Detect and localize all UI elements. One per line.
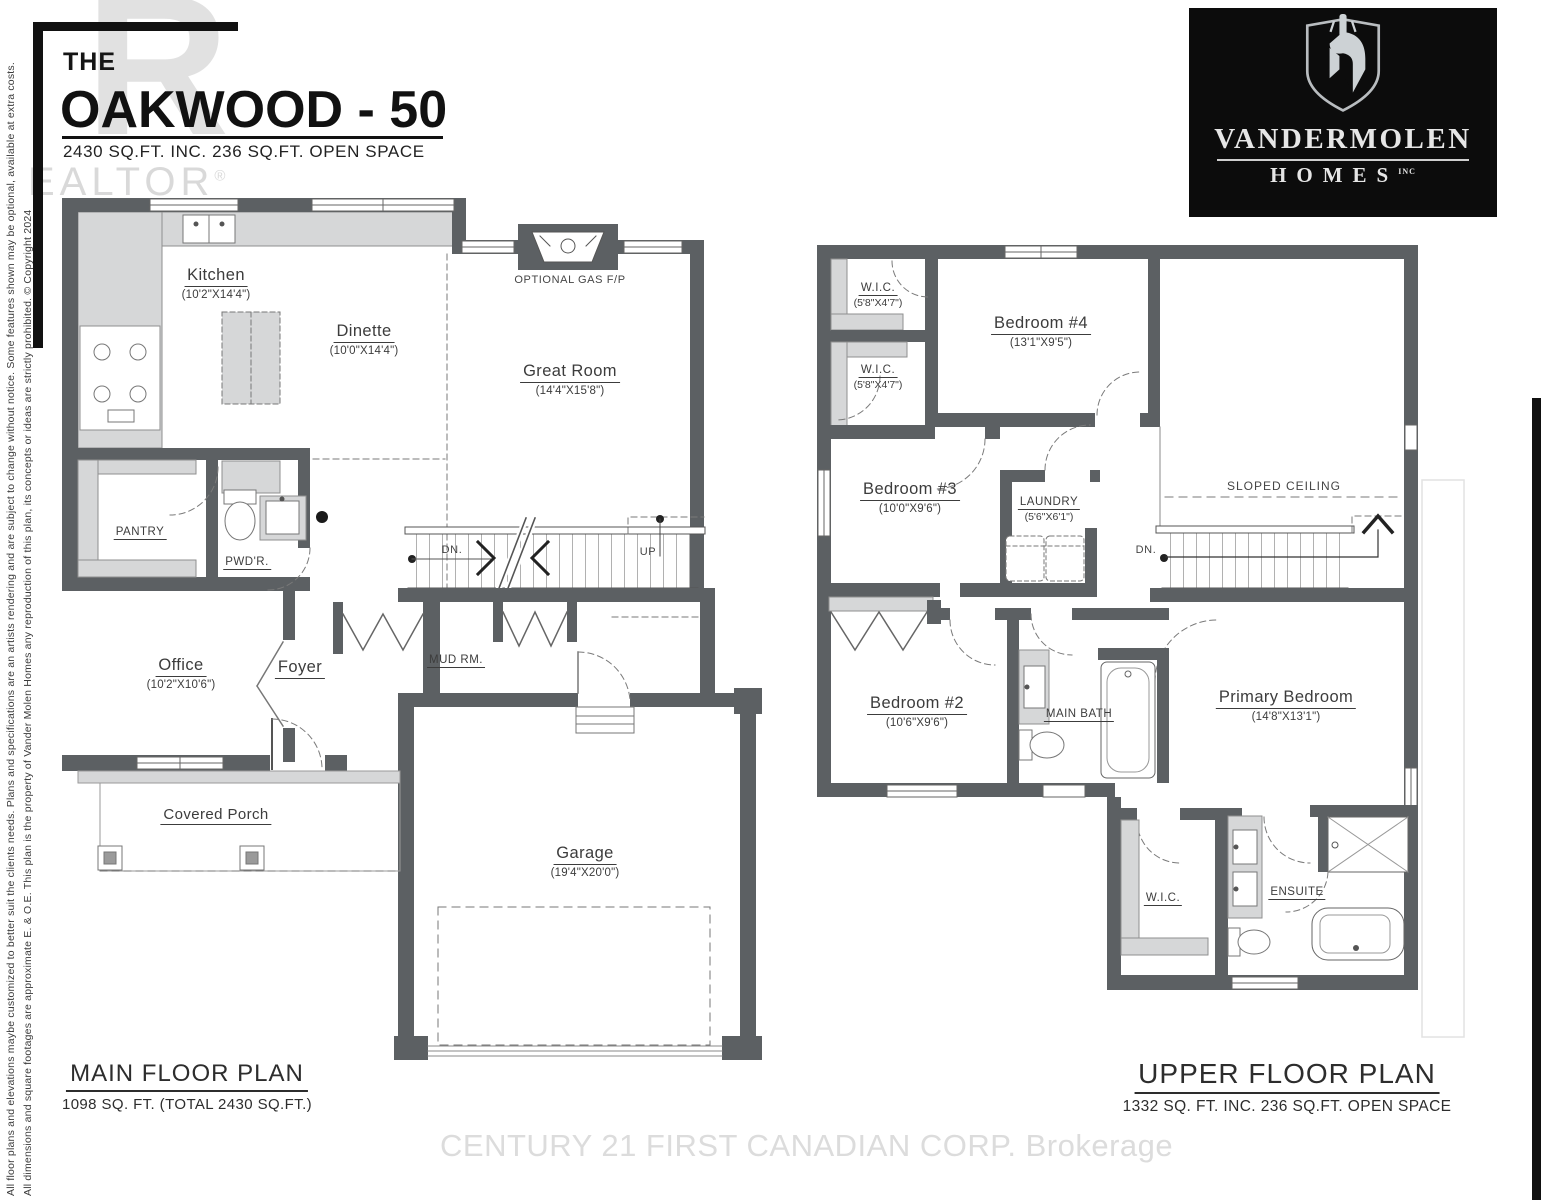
room-label-office: Office (10'2"X10'6") xyxy=(147,656,216,691)
room-label-wic3: W.I.C. xyxy=(1144,888,1182,906)
upper-floor-plan xyxy=(817,245,1464,1037)
label-stairs-dn-main: DN. xyxy=(442,544,463,556)
room-label-dinette: Dinette (10'0"X14'4") xyxy=(330,322,399,357)
room-label-ensuite: ENSUITE xyxy=(1268,882,1325,900)
room-label-great-room: Great Room (14'4"X15'8") xyxy=(520,362,620,397)
label-stairs-up-main: UP xyxy=(640,546,656,558)
room-label-bedroom2: Bedroom #2 (10'6"X9'6") xyxy=(867,694,967,729)
room-label-laundry: LAUNDRY (5'6"X6'1") xyxy=(1018,492,1080,523)
floor-plan-drawing xyxy=(0,0,1553,1200)
floor-plan-sheet: R EALTOR® THE OAKWOOD - 50 2430 SQ.FT. I… xyxy=(0,0,1553,1200)
room-label-primary-bedroom: Primary Bedroom (14'8"X13'1") xyxy=(1216,688,1356,723)
label-stairs-dn-upper: DN. xyxy=(1136,544,1157,556)
label-sloped-ceiling: SLOPED CEILING xyxy=(1227,479,1341,493)
main-floor-plan xyxy=(62,198,762,1060)
room-label-pantry: PANTRY xyxy=(114,522,167,540)
room-label-powder: PWD'R. xyxy=(223,552,271,570)
label-optional-gas-fp: OPTIONAL GAS F/P xyxy=(514,274,625,286)
room-label-mud-room: MUD RM. xyxy=(427,650,485,668)
room-label-foyer: Foyer xyxy=(275,658,325,679)
room-label-main-bath: MAIN BATH xyxy=(1044,704,1114,722)
room-label-covered-porch: Covered Porch xyxy=(160,806,271,825)
brokerage-watermark: CENTURY 21 FIRST CANADIAN CORP. Brokerag… xyxy=(440,1128,1173,1164)
room-label-bedroom3: Bedroom #3 (10'0"X9'6") xyxy=(860,480,960,515)
room-label-bedroom4: Bedroom #4 (13'1"X9'5") xyxy=(991,314,1091,349)
room-label-wic2: W.I.C. (5'8"X4'7") xyxy=(854,360,903,391)
room-label-kitchen: Kitchen (10'2"X14'4") xyxy=(182,266,251,301)
main-floor-plan-title: MAIN FLOOR PLAN 1098 SQ. FT. (TOTAL 2430… xyxy=(62,1060,312,1113)
upper-floor-plan-title: UPPER FLOOR PLAN 1332 SQ. FT. INC. 236 S… xyxy=(1123,1058,1452,1116)
room-label-wic1: W.I.C. (5'8"X4'7") xyxy=(854,278,903,309)
room-label-garage: Garage (19'4"X20'0") xyxy=(551,844,620,879)
